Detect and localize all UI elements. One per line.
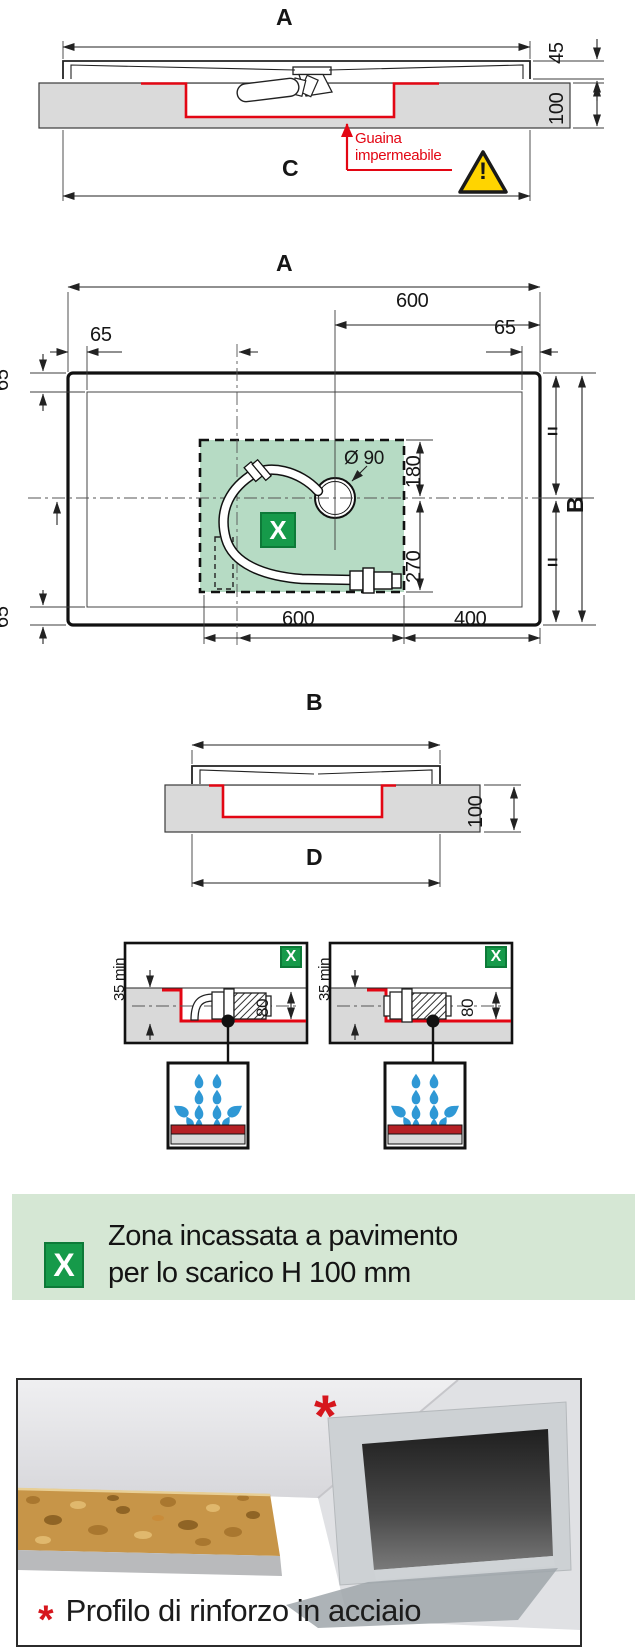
asterisk-marker: *: [314, 1388, 337, 1446]
legend-banner: X Zona incassata a pavimento per lo scar…: [12, 1194, 635, 1300]
dim-label-d: D: [306, 846, 322, 869]
dim-label-270: 270: [404, 551, 424, 583]
asterisk-marker: *: [38, 1600, 54, 1640]
dim-label-65-left-lower: 65: [0, 606, 12, 628]
dim-label-80-left: 80: [254, 999, 271, 1017]
dim-label-65-left-upper: 65: [0, 369, 12, 391]
dim-label-100-b: 100: [466, 796, 486, 828]
caption-text: Profilo di rinforzo in acciaio: [66, 1592, 421, 1629]
water-drop-box-left: [168, 1063, 248, 1148]
photo-caption: * Profilo di rinforzo in acciaio: [38, 1592, 421, 1640]
dim-label-b-section: B: [306, 691, 322, 714]
dim-label-a-plan: A: [276, 252, 292, 275]
water-drop-box-right: [385, 1063, 465, 1148]
zone-x-marker: X: [280, 946, 302, 968]
legend-line2: per lo scarico H 100 mm: [108, 1255, 458, 1292]
chipboard-layer: [18, 1488, 280, 1556]
warning-exclamation: !: [479, 160, 487, 184]
floor-cross-section-b: [165, 785, 480, 832]
plan-view: [0, 250, 635, 670]
dim-label-35min-right: 35 min: [317, 958, 332, 1001]
drain-diameter-label: Ø 90: [344, 449, 384, 468]
dim-label-c: C: [282, 157, 298, 180]
zone-x-marker: X: [44, 1242, 84, 1288]
side-section-a: [0, 0, 635, 220]
legend-line1: Zona incassata a pavimento: [108, 1218, 458, 1255]
dim-label-600-bottom: 600: [282, 609, 314, 629]
dim-label-600-top: 600: [396, 291, 428, 311]
technical-sheet: A 45 100 Guaina impermeabile ! C A 600 6…: [0, 0, 635, 1650]
legend-text: Zona incassata a pavimento per lo scaric…: [108, 1218, 458, 1292]
zone-x-marker: X: [485, 946, 507, 968]
tray-profile-b: [192, 766, 440, 784]
dim-label-35min-left: 35 min: [112, 958, 127, 1001]
membrane-label-line1: Guaina: [355, 131, 402, 146]
dim-label-a-top: A: [276, 6, 292, 29]
dim-label-100-a: 100: [547, 93, 567, 125]
dim-label-80-right: 80: [459, 999, 476, 1017]
steel-profile-opening: [362, 1429, 553, 1570]
membrane-label-line2: impermeabile: [355, 148, 441, 163]
dim-label-65-top-right: 65: [494, 318, 516, 338]
dim-label-65-top-left: 65: [90, 325, 112, 345]
dim-label-45: 45: [547, 42, 567, 64]
dim-label-180: 180: [404, 456, 424, 488]
zone-x-marker: X: [260, 512, 296, 548]
dim-label-b-plan: B: [564, 497, 587, 513]
dim-label-400: 400: [454, 609, 486, 629]
equal-mark-lower: =: [547, 554, 558, 573]
equal-mark-upper: =: [547, 423, 558, 442]
